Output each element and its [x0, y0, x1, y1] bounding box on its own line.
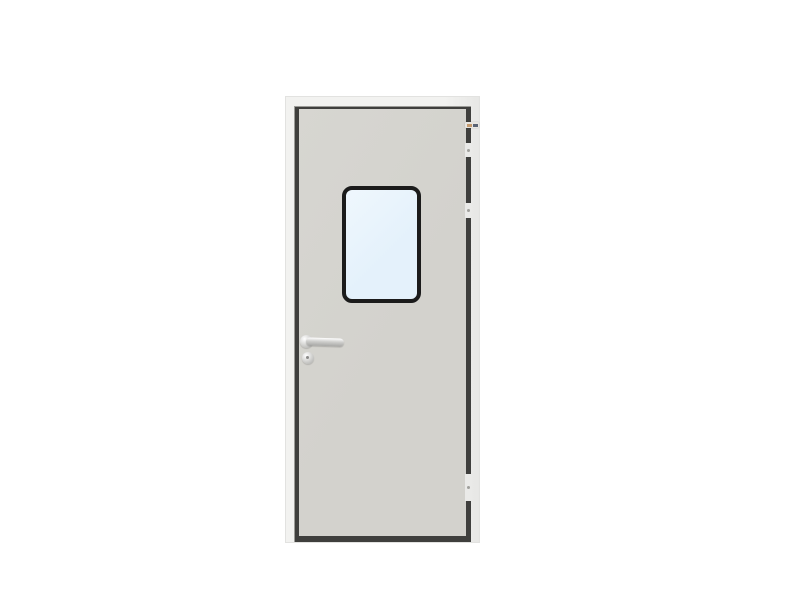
- brand-sticker: [465, 122, 479, 128]
- hinge-middle: [465, 203, 472, 218]
- product-photo-canvas: [0, 0, 800, 600]
- sticker-logo-mark: [467, 124, 472, 127]
- vision-window-glass: [342, 186, 421, 303]
- sticker-text-mark: [473, 124, 478, 127]
- hinge-pin-dot: [467, 209, 470, 212]
- lock-cylinder-escutcheon: [302, 352, 314, 364]
- hinge-bottom: [465, 474, 472, 501]
- lever-handle: [306, 337, 344, 346]
- door-leaf: [299, 109, 466, 536]
- door-frame: [285, 96, 480, 543]
- hinge-pin-dot: [467, 486, 470, 489]
- keyhole-dot: [306, 356, 309, 359]
- hinge-pin-dot: [467, 149, 470, 152]
- hinge-top: [465, 143, 472, 157]
